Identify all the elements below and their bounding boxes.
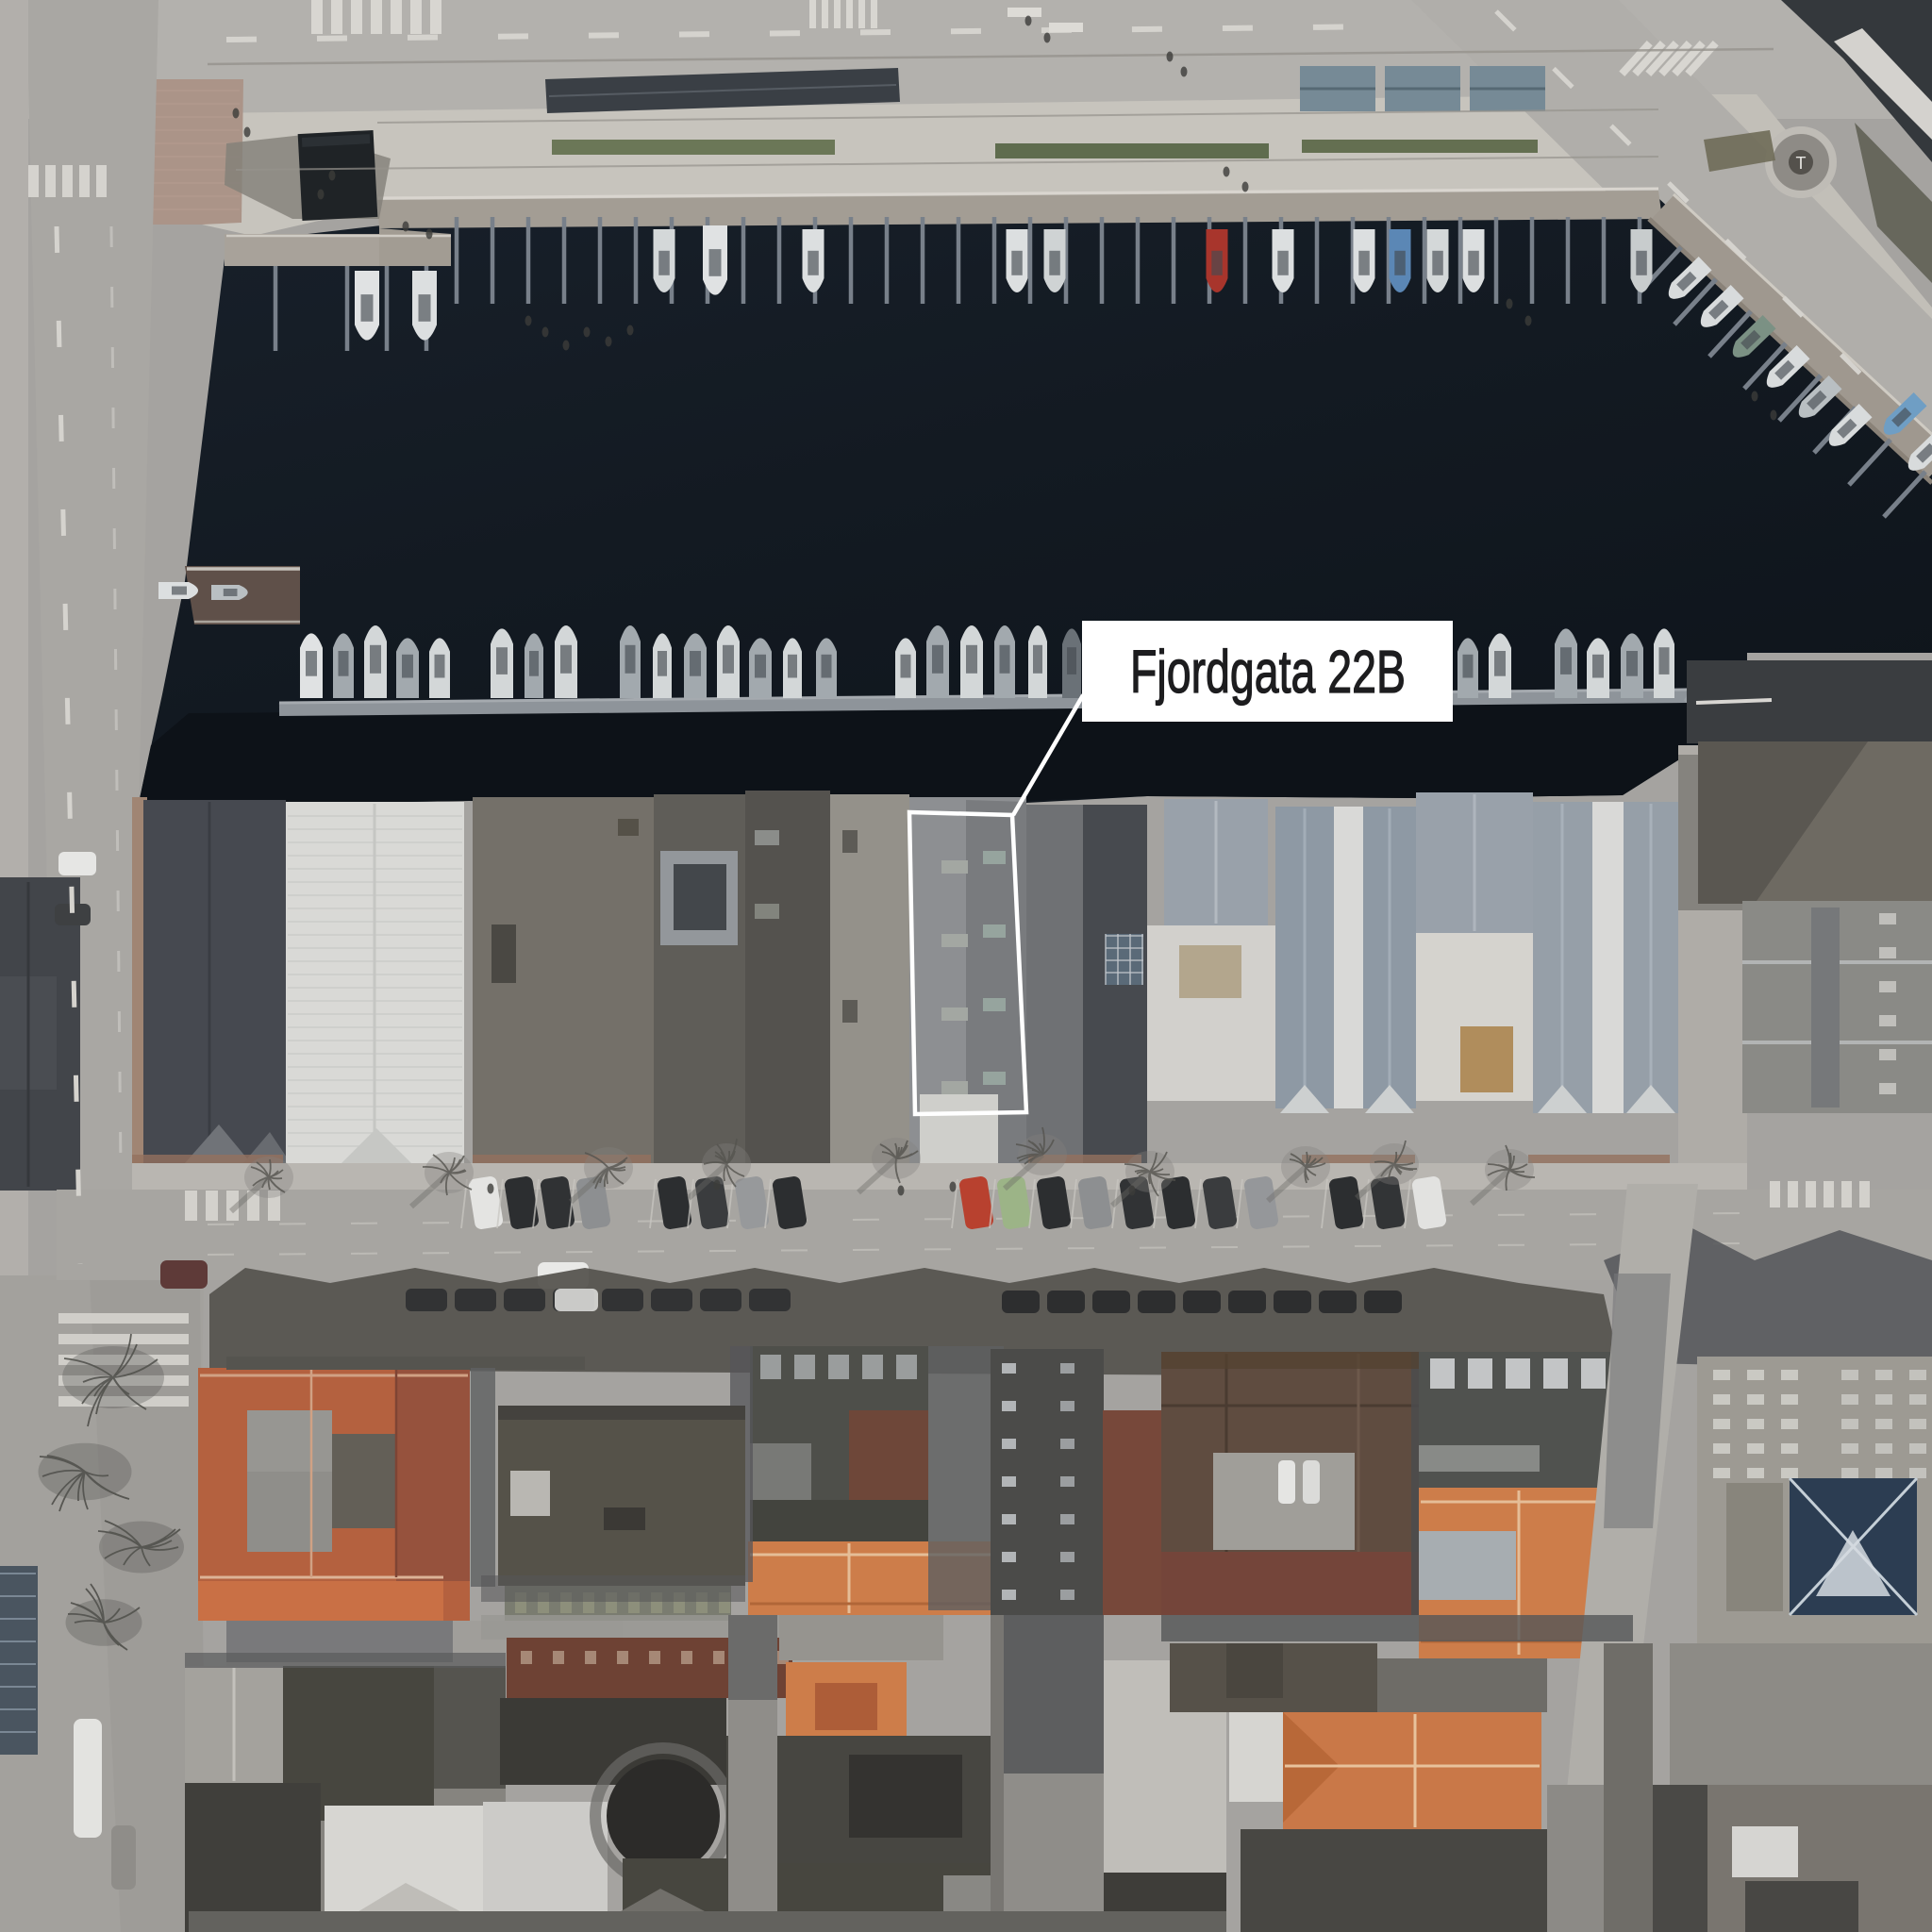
svg-text:Fjordgata 22B: Fjordgata 22B	[1130, 638, 1406, 706]
svg-text:T: T	[1796, 154, 1807, 173]
